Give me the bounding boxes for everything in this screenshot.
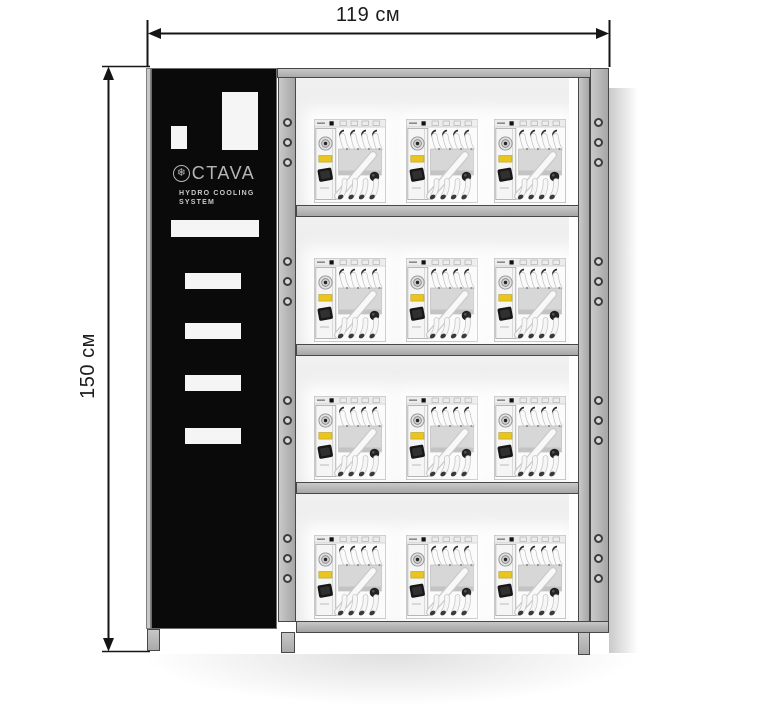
- mounting-hole: [594, 396, 603, 405]
- rack-outer-right-upright: [590, 68, 609, 633]
- mounting-hole: [283, 554, 292, 563]
- rack-inner-right-upright: [578, 77, 590, 622]
- rack-leg-right: [578, 632, 590, 655]
- mounting-hole: [283, 436, 292, 445]
- hydro-cooling-unit: [406, 535, 478, 619]
- mounting-hole: [283, 416, 292, 425]
- mounting-hole: [594, 574, 603, 583]
- width-dimension-label: 119 см: [278, 4, 458, 27]
- shelf-divider: [296, 344, 590, 356]
- rack-leg-left: [281, 632, 295, 653]
- mounting-hole: [594, 118, 603, 127]
- mounting-hole: [594, 297, 603, 306]
- mounting-hole: [594, 554, 603, 563]
- shelf-section: [296, 356, 569, 482]
- rack-bottom-bar: [296, 621, 609, 633]
- mounting-hole: [283, 277, 292, 286]
- mounting-hole: [283, 297, 292, 306]
- rack-shelves: [0, 0, 757, 723]
- mounting-hole: [283, 396, 292, 405]
- mounting-hole: [283, 138, 292, 147]
- hydro-cooling-unit: [314, 396, 386, 480]
- shelf-section: [296, 494, 569, 621]
- shelf-divider: [296, 205, 590, 217]
- panel-leg: [147, 629, 160, 651]
- mounting-hole: [283, 534, 292, 543]
- shelf-section: [296, 78, 569, 205]
- shelf-divider: [296, 482, 590, 494]
- hydro-cooling-unit: [406, 396, 478, 480]
- shelf-section: [296, 217, 569, 344]
- hydro-cooling-unit: [494, 119, 566, 203]
- mounting-hole: [283, 118, 292, 127]
- hydro-cooling-unit: [314, 258, 386, 342]
- diagram-canvas: ❄ CTAVA HYDRO COOLING SYSTEM: [0, 0, 757, 723]
- mounting-hole: [594, 138, 603, 147]
- hydro-cooling-unit: [406, 119, 478, 203]
- mounting-hole: [594, 436, 603, 445]
- height-dimension-label: 150 см: [73, 306, 103, 426]
- mounting-hole: [283, 574, 292, 583]
- hydro-cooling-unit: [494, 258, 566, 342]
- hydro-cooling-unit: [406, 258, 478, 342]
- mounting-hole: [283, 257, 292, 266]
- hydro-cooling-unit: [314, 119, 386, 203]
- hydro-cooling-unit: [494, 396, 566, 480]
- mounting-hole: [594, 534, 603, 543]
- mounting-hole: [283, 158, 292, 167]
- mounting-hole: [594, 277, 603, 286]
- hydro-cooling-unit: [314, 535, 386, 619]
- mounting-hole: [594, 416, 603, 425]
- mounting-hole: [594, 257, 603, 266]
- mounting-hole: [594, 158, 603, 167]
- rack-top-bar: [277, 68, 608, 78]
- hydro-cooling-unit: [494, 535, 566, 619]
